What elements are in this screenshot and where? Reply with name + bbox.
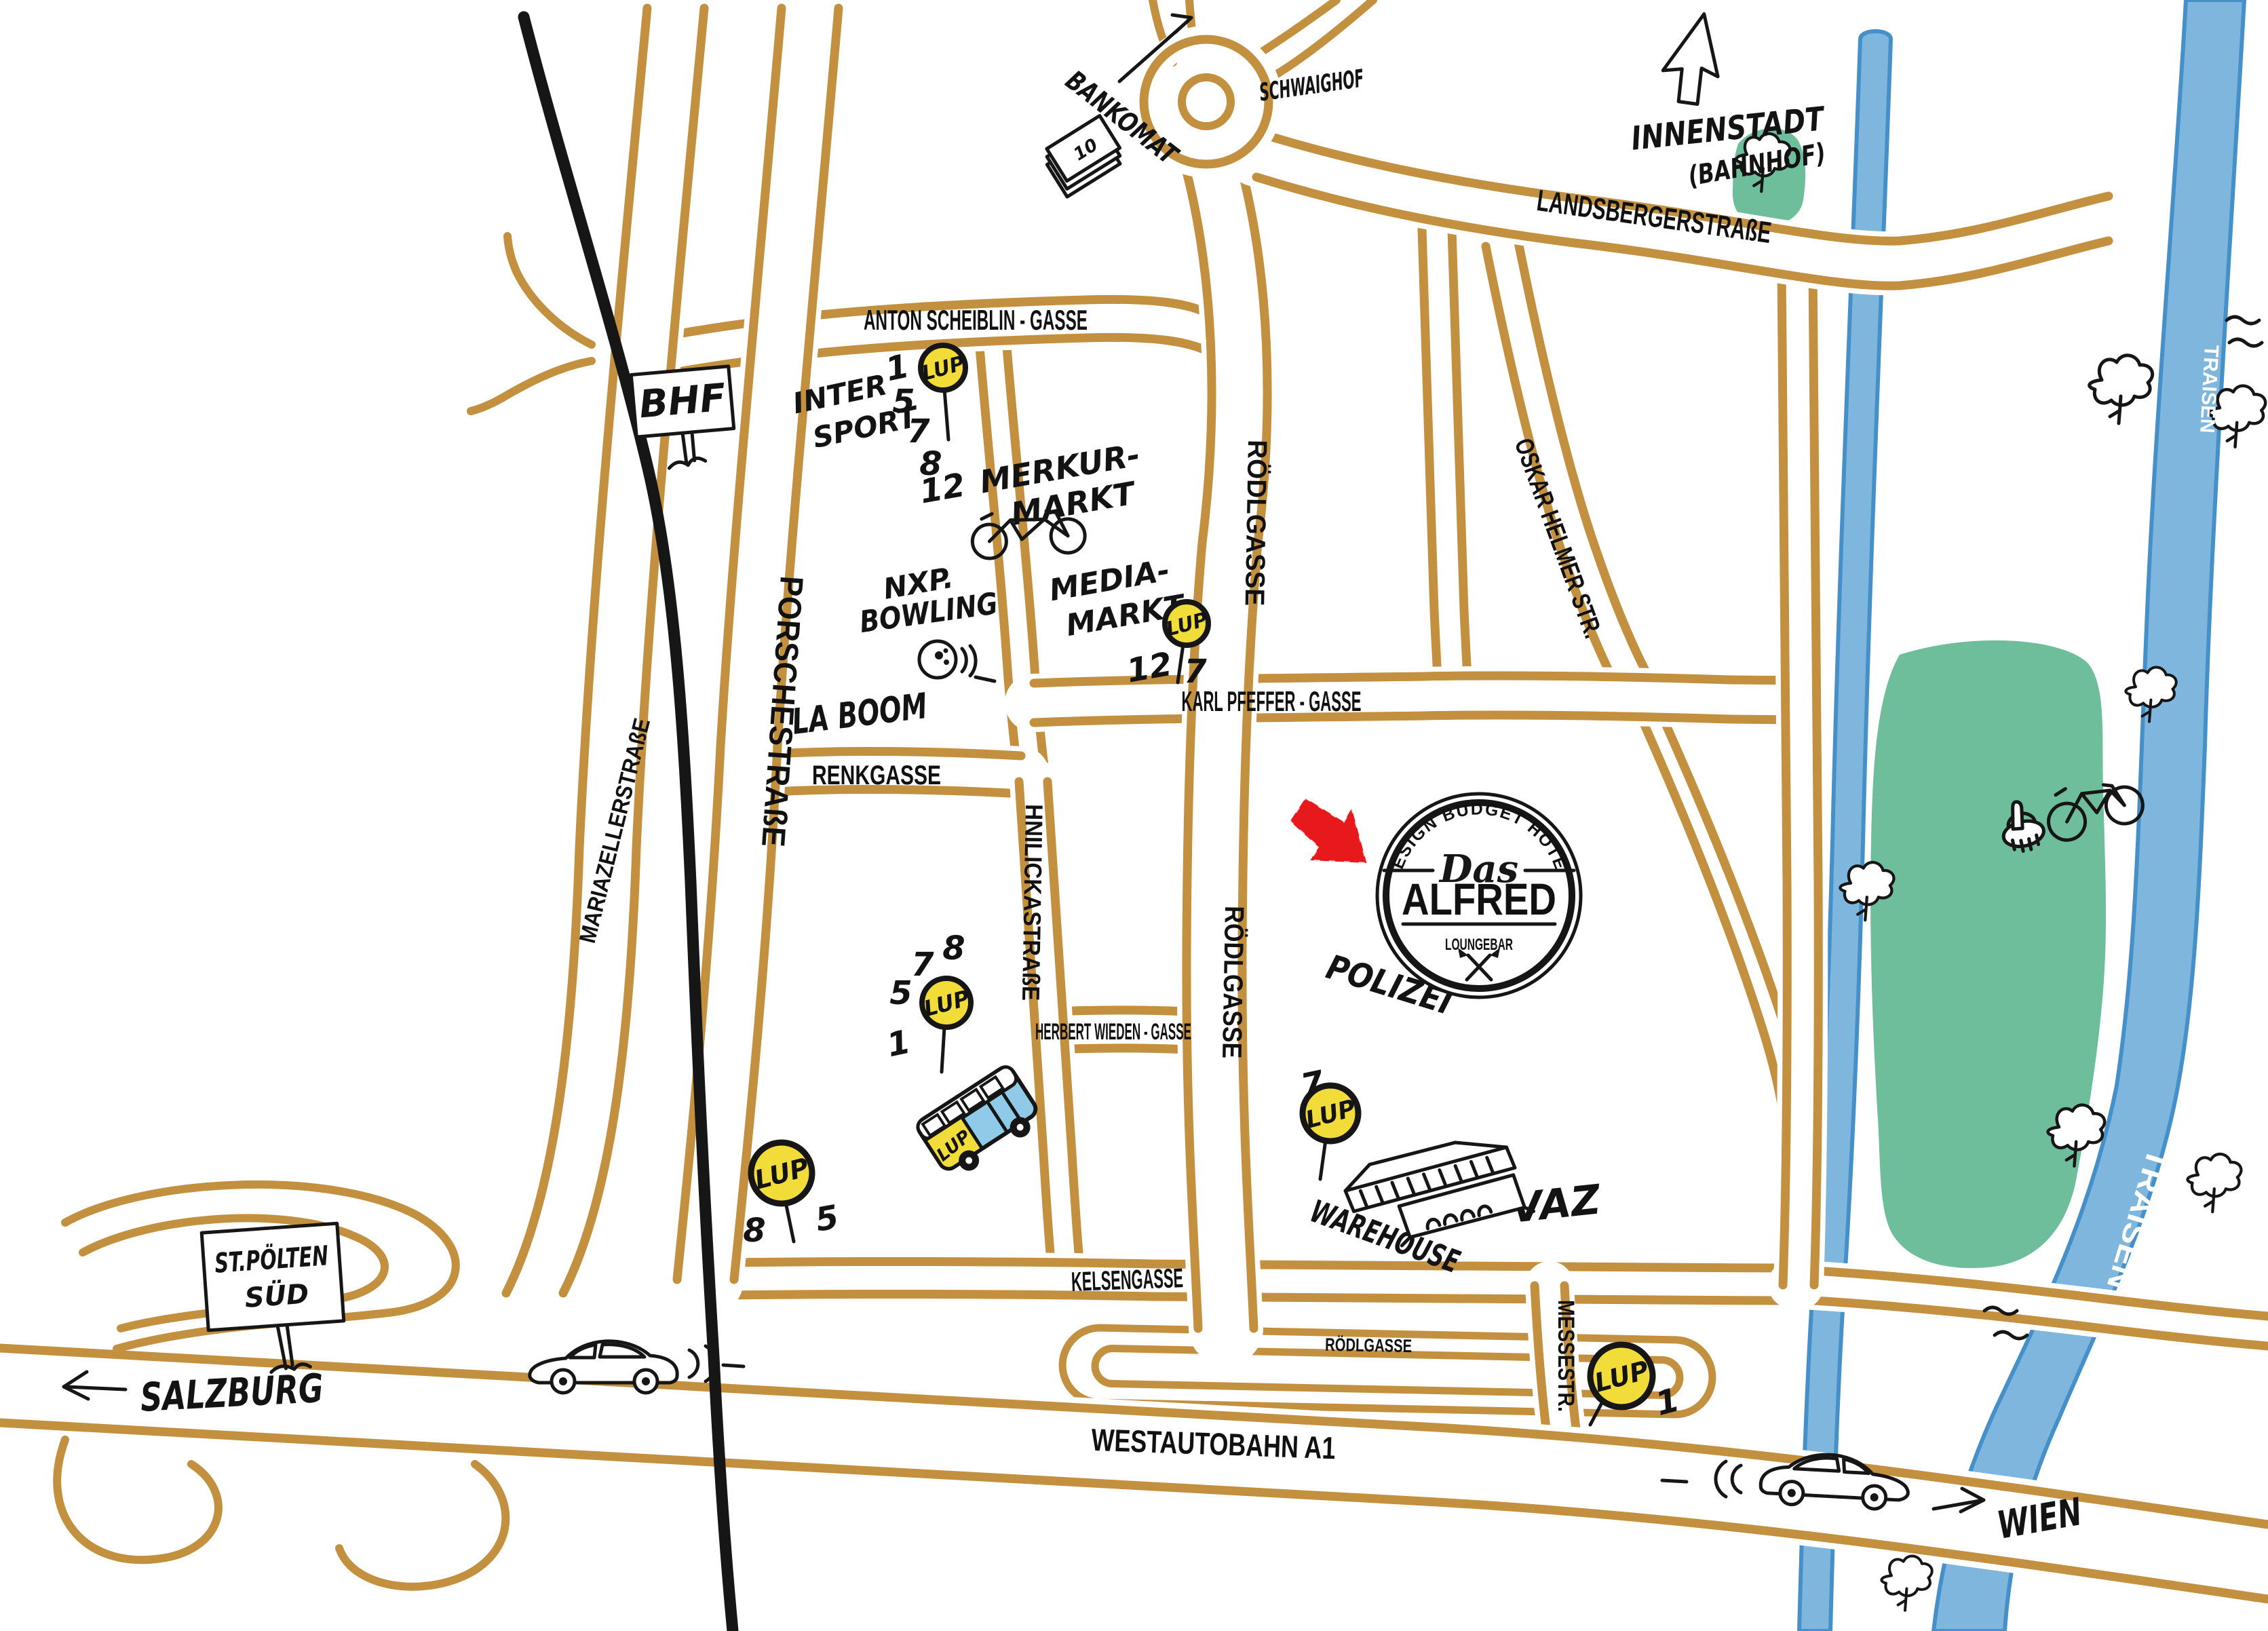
stamp-loungebar: LOUNGEBAR (1445, 936, 1513, 954)
street-label-hnilicka: HNILICKASTRAßE (1017, 804, 1048, 1001)
lup-line-number: 5 (813, 1198, 842, 1240)
lup-bus-icon: LUP (915, 1064, 1046, 1183)
street-label-renkgasse: RENKGASSE (812, 761, 941, 790)
innenstadt-arrow-icon (1657, 8, 1730, 109)
street-label-roedlgasse-upper: RÖDLGASSE (1239, 440, 1273, 607)
lup-line-number: 7 (1298, 1063, 1328, 1105)
road-v2 (1782, 270, 1818, 1285)
street-label-karl-pfeffer: KARL PFEFFER - GASSE (1182, 685, 1362, 717)
lup-line-number: 7 (1184, 653, 1207, 691)
bowling-ball-icon (919, 641, 995, 681)
tree-icon (1881, 1556, 1931, 1610)
place-label-laboom: LA BOOM (790, 686, 929, 743)
street-label-messestr: MESSESTR. (1553, 1300, 1579, 1412)
lup-line-number: 7 (911, 946, 934, 984)
street-label-roedlgasse-small: RÖDLGASSE (1325, 1335, 1412, 1356)
stamp-alfred: ALFRED (1402, 874, 1556, 924)
red-arrow-icon (1277, 782, 1387, 889)
river-label-traisen-upper: TRAISEN (2195, 345, 2223, 434)
park-large (1870, 640, 2106, 1268)
street-label-roedlgasse-lower: RÖDLGASSE (1216, 906, 1250, 1059)
lup-line-number: 5 (889, 974, 912, 1012)
lup-line-number: 12 (917, 466, 968, 512)
lup-line-number: 1 (884, 1022, 914, 1064)
lup-line-number: 8 (743, 1212, 765, 1250)
hand-drawn-city-map: ANTON SCHEIBLIN - GASSE LANDSBERGERSTRAß… (0, 0, 2268, 1631)
stpoelten-line2: SÜD (244, 1277, 310, 1313)
lup-stop-kelsengasse: LUP 8 5 (743, 1143, 841, 1250)
road-oskar-helmer (1486, 235, 1659, 704)
street-label-anton-scheiblin: ANTON SCHEIBLIN - GASSE (864, 304, 1088, 336)
place-label-salzburg: SALZBURG (139, 1365, 324, 1421)
lup-stop-herbert-wieden: LUP 8 7 5 1 (884, 929, 973, 1072)
tree-icon (2187, 1154, 2241, 1212)
tree-icon (2090, 356, 2153, 423)
road-v3 (1422, 229, 1469, 695)
lup-stop-warehouse: LUP 7 (1298, 1063, 1359, 1179)
lup-line-number: 8 (942, 929, 965, 967)
street-label-kelsengasse: KELSENGASSE (1071, 1263, 1183, 1297)
street-label-herbert-wieden: HERBERT WIEDEN - GASSE (1035, 1019, 1191, 1045)
bhf-label: BHF (637, 376, 727, 427)
lup-line-number: 12 (1123, 645, 1175, 691)
